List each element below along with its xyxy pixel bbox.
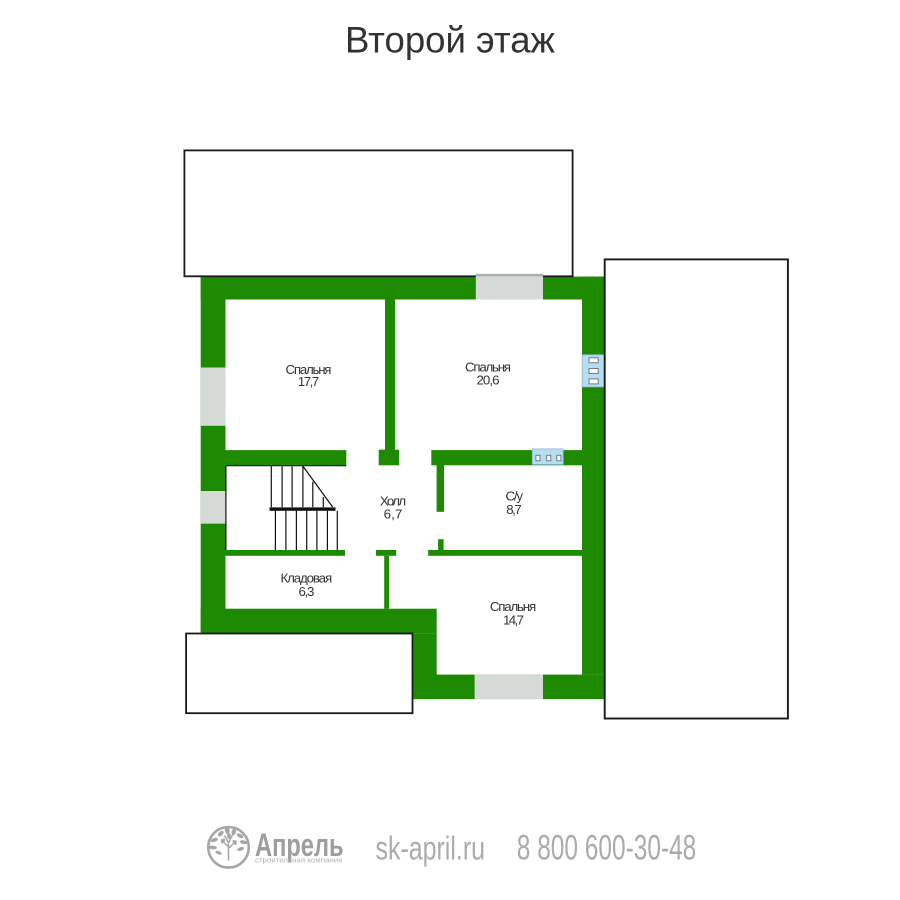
svg-text:8 800 600-30-48: 8 800 600-30-48 xyxy=(517,829,697,868)
svg-text:sk-april.ru: sk-april.ru xyxy=(376,830,486,867)
svg-text:14,7: 14,7 xyxy=(503,612,524,627)
svg-text:Второй этаж: Второй этаж xyxy=(345,20,555,61)
svg-text:17,7: 17,7 xyxy=(298,374,319,389)
svg-text:20,6: 20,6 xyxy=(477,372,500,387)
svg-text:6,3: 6,3 xyxy=(299,584,315,599)
svg-text:8,7: 8,7 xyxy=(506,502,522,517)
svg-text:строительная компания: строительная компания xyxy=(255,856,343,865)
svg-text:6,7: 6,7 xyxy=(384,506,403,521)
